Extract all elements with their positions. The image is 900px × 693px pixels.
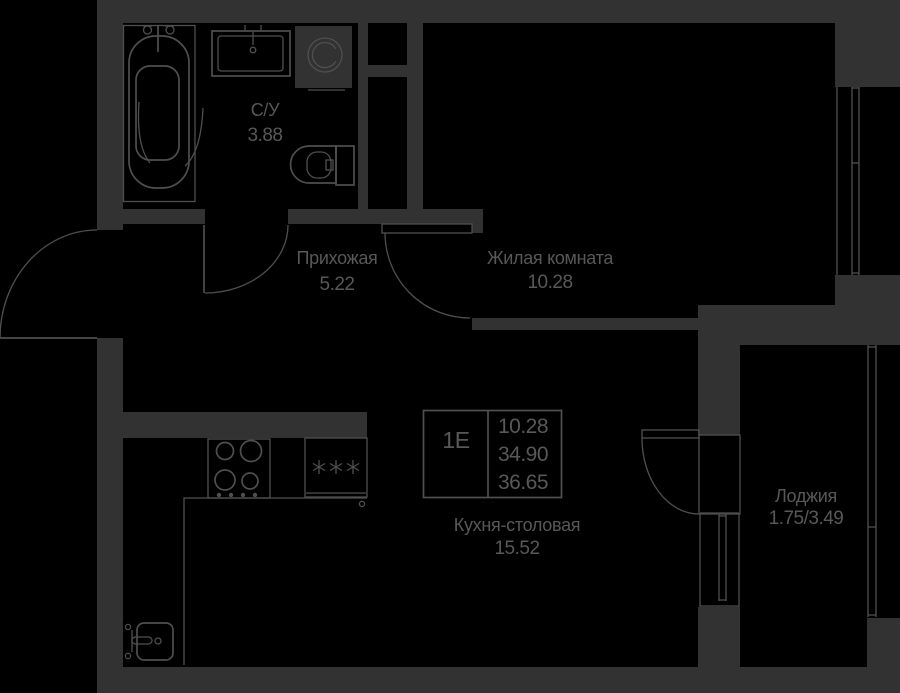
freezer-snowflake-icon xyxy=(313,460,359,474)
kitchen-fixtures xyxy=(125,438,367,665)
wall-right-pier-top xyxy=(835,23,900,87)
bathroom-door-icon xyxy=(204,225,288,293)
living-room-window-icon xyxy=(837,87,859,275)
wall-hall-band-left xyxy=(123,209,205,224)
wall-left-lower xyxy=(97,338,123,693)
washing-machine-icon xyxy=(295,26,352,90)
toilet-icon xyxy=(291,146,355,185)
vent-shaft-pocket xyxy=(368,23,407,65)
wall-livingroom-south xyxy=(472,318,698,330)
kitchen-sink-icon xyxy=(125,623,173,660)
wall-right-pier-mid xyxy=(835,275,900,305)
loggia-name: Лоджия xyxy=(775,486,837,506)
hallway-area: 5.22 xyxy=(320,274,355,295)
balcony-door-icon xyxy=(642,430,740,514)
entrance-door-icon xyxy=(0,230,97,338)
room-label-bathroom: С/У 3.88 xyxy=(248,100,283,146)
wall-hall-band-right xyxy=(288,209,483,224)
living-room-door-icon xyxy=(382,224,472,318)
floor-plan-canvas: С/У 3.88 Прихожая 5.22 Жилая комната 10.… xyxy=(0,0,900,693)
counter-hinge-dot xyxy=(359,501,364,506)
kitchen-dining-name: Кухня-столовая xyxy=(454,515,580,535)
wall-kitchen-top xyxy=(123,412,367,438)
kitchen-counter-icon xyxy=(184,498,367,665)
bathroom-fixtures xyxy=(124,25,355,202)
wall-left-upper xyxy=(97,23,123,230)
fridge-icon xyxy=(305,438,367,507)
room-label-living-room: Жилая комната 10.28 xyxy=(487,248,614,293)
unit-type: 1Е xyxy=(442,427,469,453)
unit-total-area: 34.90 xyxy=(498,443,548,466)
living-room-name: Жилая комната xyxy=(487,248,614,268)
wall-livingroom-left xyxy=(407,23,423,210)
room-label-hallway: Прихожая 5.22 xyxy=(296,248,377,295)
bathroom-name: С/У xyxy=(251,100,280,120)
room-label-kitchen-dining: Кухня-столовая 15.52 xyxy=(454,515,580,559)
wall-loggia-top xyxy=(698,305,900,345)
bathtub-icon xyxy=(124,26,204,202)
unit-total-area-with-loggia: 36.65 xyxy=(498,471,548,494)
floor-plan: С/У 3.88 Прихожая 5.22 Жилая комната 10.… xyxy=(0,0,900,693)
wall-bathroom-right xyxy=(358,23,368,210)
living-room-area: 10.28 xyxy=(527,272,572,293)
vent-shaft-slot xyxy=(368,77,407,209)
loggia-area: 1.75/3.49 xyxy=(769,508,844,529)
bathroom-area: 3.88 xyxy=(248,125,283,146)
loggia-window-icon xyxy=(868,345,876,617)
bathroom-sink-icon xyxy=(212,25,290,76)
wall-loggia-corner-block xyxy=(867,618,900,693)
wall-bottom xyxy=(123,667,900,693)
hallway-name: Прихожая xyxy=(296,248,377,268)
room-label-loggia: Лоджия 1.75/3.49 xyxy=(769,486,844,529)
kitchen-window-icon xyxy=(700,513,739,607)
stove-icon xyxy=(208,439,270,498)
walls xyxy=(97,0,900,693)
unit-info-box: 1Е 10.28 34.90 36.65 xyxy=(424,411,562,498)
unit-living-area: 10.28 xyxy=(498,415,548,438)
wall-top xyxy=(97,0,900,23)
kitchen-dining-area: 15.52 xyxy=(494,538,539,559)
wall-shaft-connector xyxy=(358,65,423,77)
wall-kitchen-loggia-upper xyxy=(698,345,740,435)
wall-livingroom-door-jamb xyxy=(472,224,483,233)
